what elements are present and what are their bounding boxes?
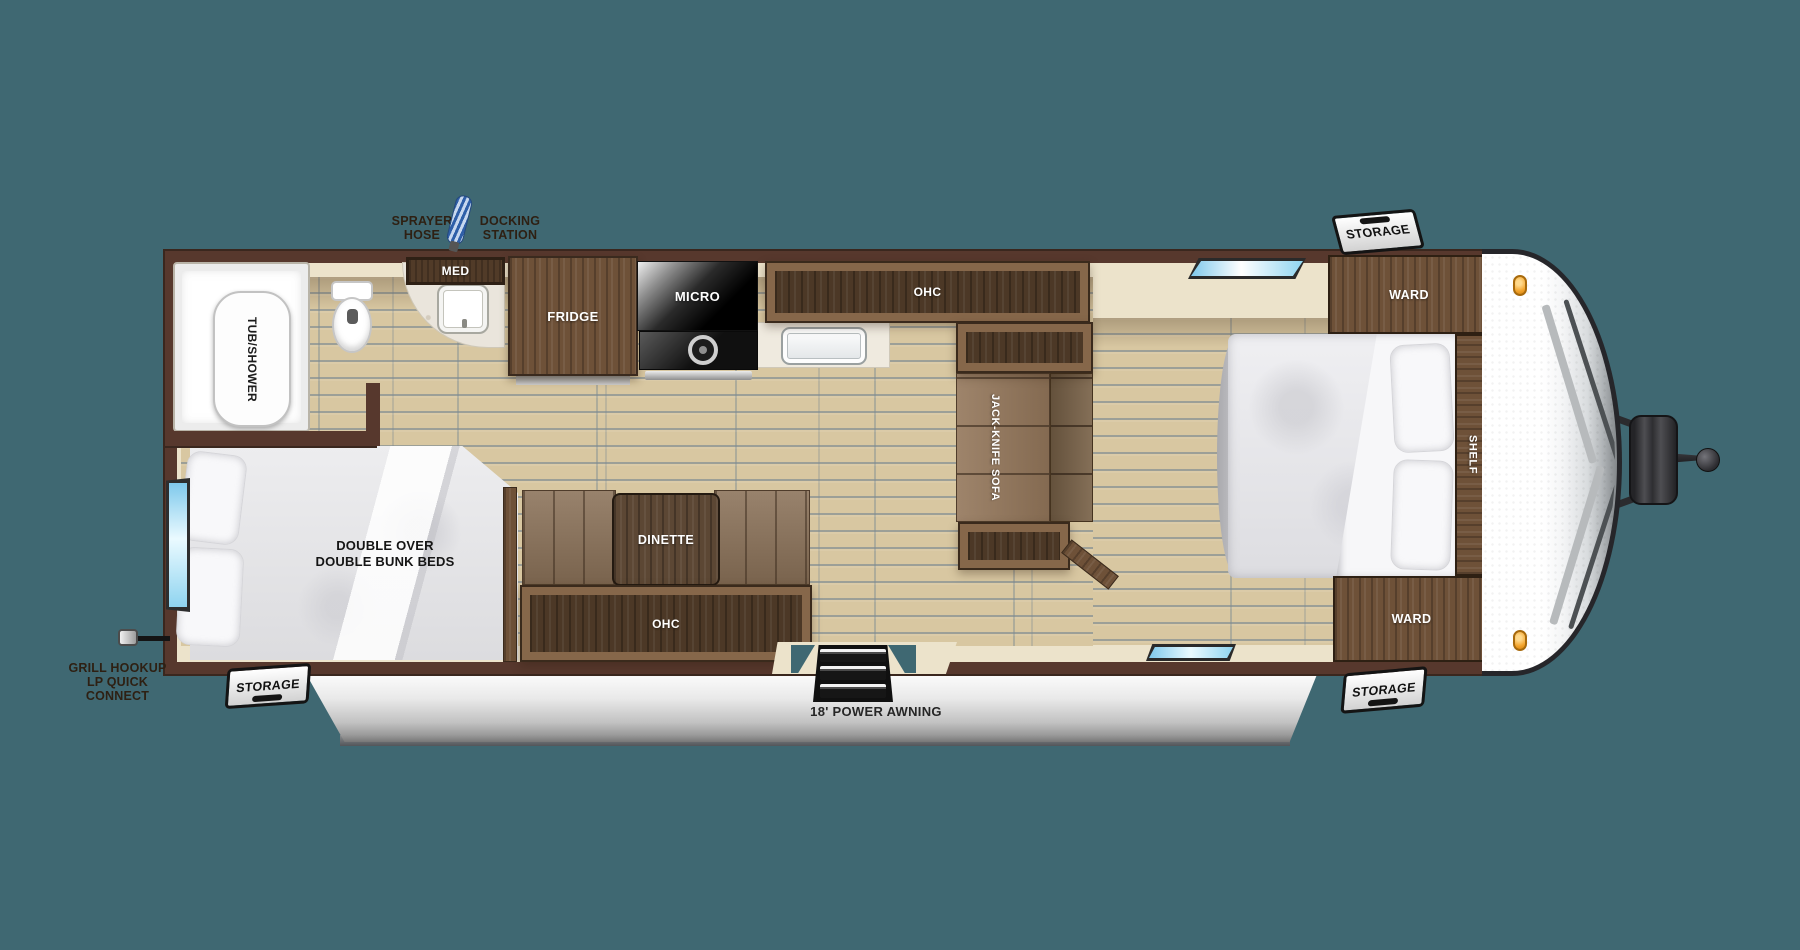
sofa-end-cabinet-panel (966, 332, 1083, 363)
bunk-bed-label-line1: DOUBLE OVER (275, 538, 495, 554)
marker-light-icon (1513, 275, 1527, 296)
fridge-base-shadow (516, 376, 630, 385)
grill-hookup-line2: LP QUICK CONNECT (55, 675, 180, 703)
toilet (332, 297, 372, 353)
marker-light-icon (1513, 630, 1527, 651)
storage-tag-notch (252, 694, 282, 702)
overhead-cabinet-dinette: OHC (520, 585, 812, 662)
jack-knife-sofa-back (1050, 373, 1093, 522)
bunk-bed-label: DOUBLE OVER DOUBLE BUNK BEDS (275, 538, 495, 570)
fridge: FRIDGE (508, 256, 638, 376)
front-cap-graphics (1482, 254, 1615, 671)
medicine-cabinet: MED (406, 257, 505, 285)
docking-station-line2: STATION (472, 228, 548, 242)
wardrobe-top-label: WARD (1330, 257, 1488, 332)
bathroom-faucet (462, 319, 467, 328)
cooktop (639, 331, 758, 370)
burner-icon (688, 335, 718, 365)
storage-tag-front-bottom-label: STORAGE (1352, 680, 1417, 700)
dinette-label: DINETTE (614, 495, 718, 584)
wardrobe-top: WARD (1328, 255, 1490, 334)
oven-drawer (645, 371, 752, 380)
bedroom-window-bottom (1146, 644, 1236, 661)
medicine-cabinet-label: MED (409, 260, 502, 282)
kitchen-sink (781, 327, 867, 365)
wardrobe-bottom: WARD (1333, 576, 1490, 662)
storage-tag-front-top: STORAGE (1331, 209, 1425, 256)
storage-tag-notch (1368, 698, 1398, 707)
grill-hookup-valve-icon (118, 629, 138, 646)
bunk-window (166, 478, 190, 612)
step-tread (820, 666, 886, 680)
bunk-window-pane (169, 483, 187, 607)
sofa-end-table-panel (968, 532, 1060, 560)
storage-tag-front-bottom: STORAGE (1340, 666, 1427, 714)
grill-hookup-pipe-icon (136, 636, 170, 641)
docking-station-callout: DOCKING STATION (472, 214, 548, 242)
sprayer-hose-line1: SPRAYER (388, 214, 456, 228)
propane-tank-cover (1629, 415, 1678, 505)
storage-tag-front-top-label: STORAGE (1344, 222, 1411, 241)
tub-shower-label-plate: TUB/SHOWER (213, 291, 291, 427)
dinette-bench-right (714, 490, 810, 585)
grill-hookup-line1: GRILL HOOKUP (55, 661, 180, 675)
bathroom-wall-stub (366, 383, 380, 446)
hitch-ball-icon (1696, 448, 1720, 472)
bedroom-window-bottom-pane (1149, 647, 1233, 658)
toilet-bowl-detail (347, 309, 358, 324)
power-awning-label: 18' POWER AWNING (756, 704, 996, 719)
jack-knife-sofa-label: JACK-KNIFE SOFA (985, 373, 1005, 522)
bunk-divider-wall (503, 487, 517, 662)
bathroom-wall (165, 431, 377, 446)
microwave-label: MICRO (638, 262, 757, 330)
storage-tag-rear: STORAGE (225, 663, 312, 709)
fridge-label: FRIDGE (510, 258, 636, 374)
overhead-cabinet-kitchen: OHC (765, 261, 1090, 323)
step-tread (820, 649, 886, 662)
cap-accent-stripe (1541, 304, 1597, 464)
bunk-bed-label-line2: DOUBLE BUNK BEDS (275, 554, 495, 570)
step-tread (820, 684, 886, 698)
sofa-end-table (958, 522, 1070, 570)
floorplan-canvas: TUB/SHOWER MED DOUBLE OVER DOUBLE BUNK B… (0, 0, 1800, 950)
bed-pillow (1389, 343, 1455, 454)
overhead-cabinet-dinette-label: OHC (522, 587, 810, 660)
dinette-table: DINETTE (612, 493, 720, 586)
storage-tag-rear-label: STORAGE (236, 677, 301, 696)
docking-station-line1: DOCKING (472, 214, 548, 228)
bedroom-window-top (1188, 258, 1306, 279)
tub-shower-label: TUB/SHOWER (245, 317, 259, 402)
bedroom-window-top-pane (1191, 261, 1303, 276)
microwave: MICRO (637, 261, 758, 331)
wardrobe-bottom-label: WARD (1335, 578, 1488, 660)
sofa-end-cabinet (956, 322, 1093, 373)
dinette-bench-left (522, 490, 616, 585)
bathroom-sink (437, 284, 489, 334)
bed-pillow (1390, 459, 1454, 571)
entry-steps (813, 645, 893, 702)
grill-hookup-callout: GRILL HOOKUP LP QUICK CONNECT (55, 661, 180, 703)
overhead-cabinet-kitchen-label: OHC (767, 263, 1088, 321)
